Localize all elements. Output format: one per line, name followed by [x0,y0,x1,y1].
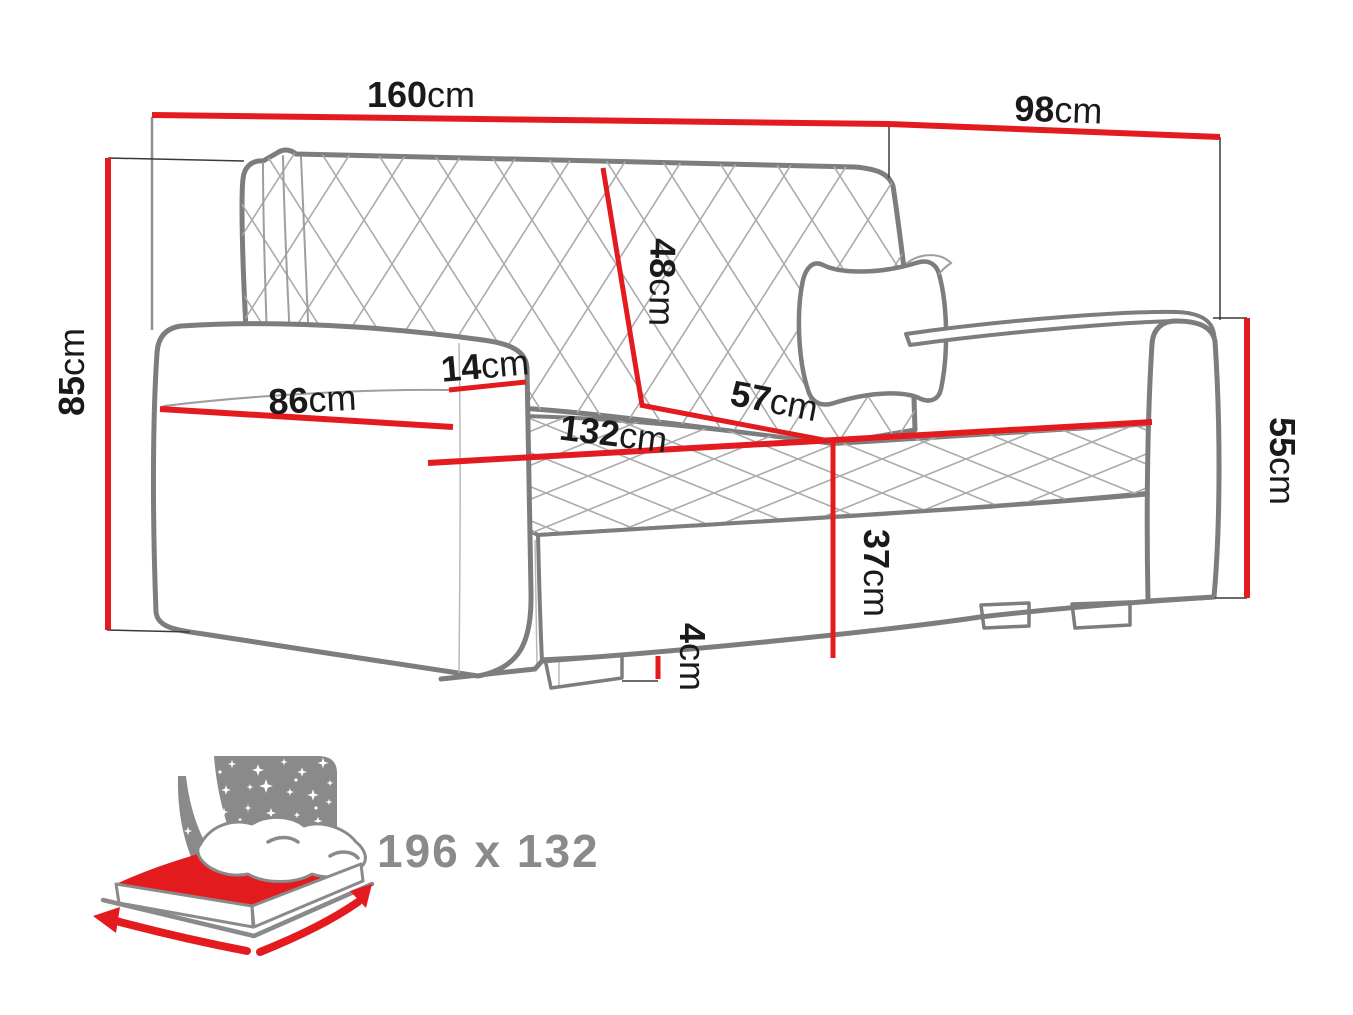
label-armrest-width: 14cm [439,341,530,390]
label-side-depth: 86cm [267,377,357,423]
bed [93,817,372,952]
sleeping-area-label: 196 x 132 [377,825,600,877]
label-base-height: 37cm [856,529,897,617]
label-overall-width: 160cm [367,74,475,115]
label-overall-height: 85cm [51,328,92,416]
dimension-diagram: 160cm 98cm 85cm 48cm 14cm 86cm 57cm 132c… [0,0,1353,1015]
dimension-line-overall-width [152,115,889,124]
label-overall-depth: 98cm [1014,87,1103,131]
label-seat-height: 55cm [1262,417,1303,505]
label-leg-height: 4cm [672,623,713,691]
label-backrest-height: 48cm [641,238,684,327]
length-arrow [116,921,247,951]
sleep-function-icon: 196 x 132 [93,756,600,952]
